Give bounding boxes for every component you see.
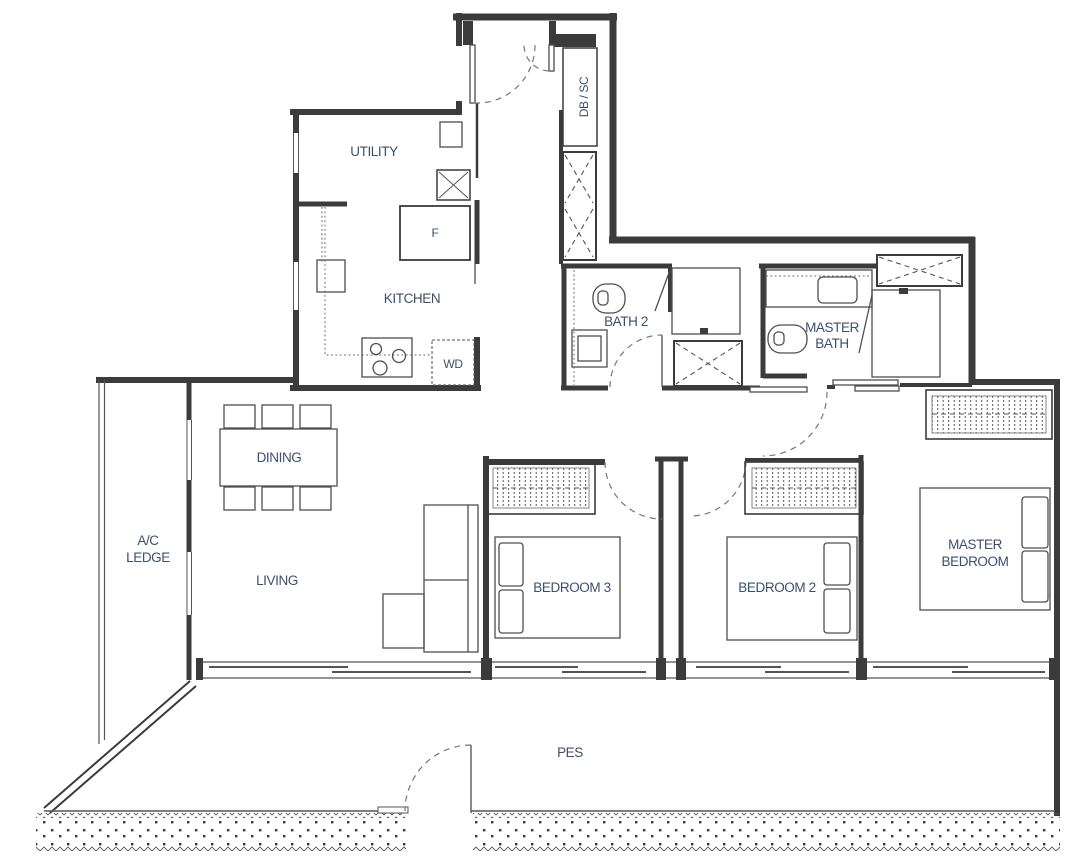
bedroom3-door [605, 462, 662, 519]
furniture [220, 390, 1052, 652]
bedroom2-door [690, 461, 746, 516]
entry-double-door [470, 45, 554, 103]
doors [405, 45, 899, 813]
kitchen-fittings [317, 48, 597, 385]
bath2-door [610, 335, 662, 387]
bath-shaft [674, 341, 742, 386]
master-bedroom-door [750, 387, 827, 456]
label-ac-ledge-1: A/C [137, 533, 159, 548]
master-bath-shower [859, 288, 940, 377]
walls [44, 13, 1060, 816]
label-fridge: F [432, 226, 439, 240]
counter-edge [325, 207, 432, 355]
label-master-bedroom-2: BEDROOM [942, 554, 1009, 569]
wall-fill [550, 34, 596, 47]
gate-threshold [378, 807, 408, 813]
kitchen-cabinet [317, 260, 345, 292]
label-master-bedroom-1: MASTER [948, 537, 1003, 552]
master-bath-toilet [768, 325, 807, 353]
planter-right [473, 813, 1060, 851]
entry-jamb-left [463, 21, 473, 45]
master-bath-sliding-door [833, 380, 899, 391]
pes-gate [405, 745, 471, 813]
utility-shaft [437, 170, 470, 200]
riser-shaft-corridor [563, 152, 596, 260]
ac-ledge-shaft [877, 255, 962, 286]
room-labels: UTILITY F DB / SC KITCHEN WD BATH 2 MAST… [126, 76, 1009, 760]
sliding-door-band [196, 658, 1058, 680]
label-master-bath-2: BATH [815, 336, 848, 351]
planter-left [36, 813, 406, 851]
utility-cabinet [440, 122, 462, 147]
label-db-sc: DB / SC [577, 76, 591, 117]
wardrobe-bedroom3 [487, 462, 595, 514]
master-bath-vanity [766, 270, 872, 307]
stove [362, 338, 412, 377]
bath2-toilet [593, 284, 625, 313]
label-bedroom3: BEDROOM 3 [533, 580, 610, 595]
label-dining: DINING [257, 450, 302, 465]
diagonal-boundary-wall [44, 681, 196, 813]
label-living: LIVING [256, 573, 298, 588]
label-washer-dryer: WD [443, 357, 463, 371]
label-bath2: BATH 2 [604, 314, 648, 329]
floor-plan-canvas: UTILITY F DB / SC KITCHEN WD BATH 2 MAST… [0, 0, 1084, 864]
label-utility: UTILITY [350, 144, 398, 159]
label-bedroom2: BEDROOM 2 [738, 580, 815, 595]
label-pes: PES [557, 745, 583, 760]
sofa [383, 505, 478, 652]
entry-jamb-right [549, 21, 556, 45]
windows [99, 133, 299, 744]
wardrobe-bedroom2 [745, 462, 863, 514]
bath2-shower [655, 268, 740, 334]
bath2-vanity [572, 270, 607, 385]
planter-strips [36, 813, 1060, 851]
label-master-bath-1: MASTER [805, 320, 860, 335]
label-kitchen: KITCHEN [384, 291, 440, 306]
wardrobe-master [926, 390, 1052, 439]
service-shafts [437, 152, 962, 386]
floor-plan: UTILITY F DB / SC KITCHEN WD BATH 2 MAST… [0, 0, 1084, 864]
label-ac-ledge-2: LEDGE [126, 550, 170, 565]
